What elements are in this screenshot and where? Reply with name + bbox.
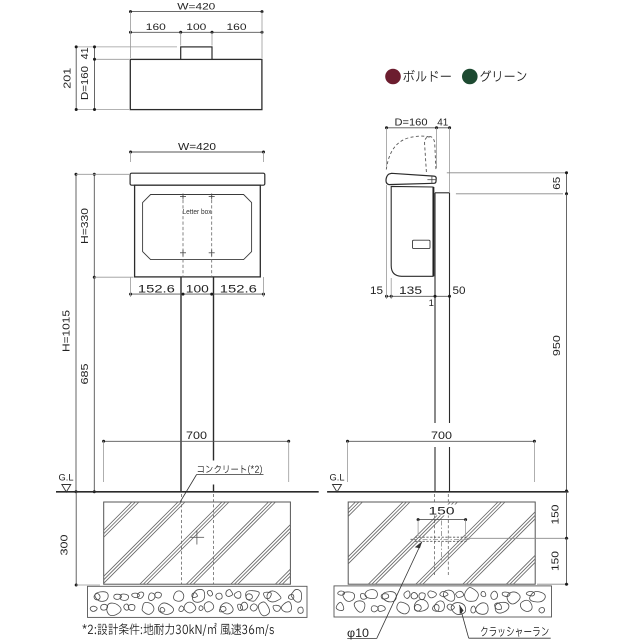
svg-text:150: 150 — [429, 506, 455, 518]
svg-text:41: 41 — [79, 47, 91, 59]
svg-text:150: 150 — [550, 551, 562, 571]
svg-text:100: 100 — [186, 283, 209, 295]
svg-text:700: 700 — [431, 430, 452, 442]
svg-text:300: 300 — [59, 534, 71, 555]
svg-text:H=1015: H=1015 — [60, 310, 72, 352]
svg-text:150: 150 — [550, 504, 562, 524]
svg-text:D=160: D=160 — [79, 66, 91, 100]
svg-text:W=420: W=420 — [177, 1, 215, 12]
svg-text:G.L: G.L — [59, 473, 74, 483]
svg-text:135: 135 — [399, 285, 422, 297]
svg-text:160: 160 — [146, 22, 166, 33]
svg-text:15: 15 — [370, 285, 383, 297]
svg-text:W=420: W=420 — [178, 142, 217, 153]
svg-text:160: 160 — [227, 22, 247, 33]
svg-text:201: 201 — [62, 68, 74, 89]
svg-text:1: 1 — [429, 298, 434, 309]
svg-text:H=330: H=330 — [79, 208, 91, 244]
svg-text:65: 65 — [551, 177, 563, 190]
svg-text:152.6: 152.6 — [220, 283, 257, 295]
svg-text:950: 950 — [551, 335, 563, 356]
svg-text:152.6: 152.6 — [138, 283, 175, 295]
svg-text:50: 50 — [453, 285, 466, 297]
svg-text:685: 685 — [79, 363, 91, 384]
svg-text:D=160: D=160 — [395, 117, 428, 128]
svg-text:100: 100 — [186, 22, 206, 33]
svg-text:700: 700 — [186, 430, 207, 442]
svg-text:Letter box: Letter box — [183, 209, 213, 216]
svg-text:G.L: G.L — [330, 473, 345, 483]
svg-text:41: 41 — [437, 117, 448, 128]
